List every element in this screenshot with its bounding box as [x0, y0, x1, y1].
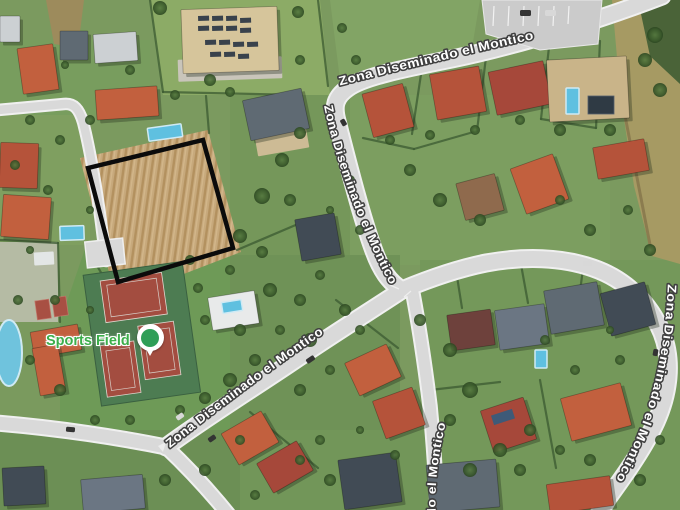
tree [26, 246, 34, 254]
tree [225, 265, 235, 275]
tree [555, 195, 565, 205]
tree [193, 283, 203, 293]
building [429, 66, 486, 120]
tree [653, 83, 667, 97]
tree [474, 214, 486, 226]
tree [254, 188, 270, 204]
tree [326, 206, 334, 214]
solar-panel [212, 26, 223, 31]
vehicle [545, 10, 556, 16]
tree [200, 315, 210, 325]
tree [294, 127, 306, 139]
tree [13, 295, 23, 305]
tree [515, 115, 525, 125]
tree [570, 365, 580, 375]
tree [337, 23, 347, 33]
tree [339, 304, 351, 316]
tree [199, 464, 211, 476]
tree [170, 90, 180, 100]
solar-panel [205, 40, 216, 45]
poi-sports-field[interactable]: Sports Field [46, 324, 164, 357]
solar-panel [226, 26, 237, 31]
swimming-pool [60, 226, 84, 241]
vehicle [520, 10, 531, 16]
tree [295, 455, 305, 465]
solar-panel [198, 26, 209, 31]
tree [462, 382, 478, 398]
tree [50, 295, 60, 305]
tree [235, 435, 245, 445]
tree [159, 474, 171, 486]
building [1, 194, 52, 239]
pin-tip [146, 349, 154, 356]
tree [256, 246, 268, 258]
tree [385, 135, 395, 145]
tree [356, 426, 364, 434]
solar-panel [588, 96, 614, 114]
tree [275, 325, 285, 335]
building [95, 86, 159, 120]
poi-label[interactable]: Sports Field [46, 333, 130, 349]
tree [647, 27, 663, 43]
tree [584, 224, 596, 236]
tree [644, 244, 656, 256]
building [17, 44, 59, 95]
tree [294, 384, 306, 396]
tree [414, 314, 426, 326]
swimming-pool [566, 88, 579, 114]
tree [263, 283, 277, 297]
solar-panel [240, 18, 251, 23]
sports-field-pin-icon[interactable] [137, 324, 164, 357]
vehicle [66, 427, 75, 433]
tree [634, 474, 646, 486]
hedge-line [206, 96, 209, 133]
tree [284, 194, 296, 206]
tree [249, 354, 261, 366]
tree [86, 306, 94, 314]
solar-panel [247, 42, 258, 47]
building [60, 31, 88, 60]
swimming-pool [535, 350, 547, 368]
solar-panel [240, 28, 251, 33]
tree [292, 6, 304, 18]
swimming-pool [221, 300, 242, 314]
tree [233, 229, 247, 243]
tree [125, 65, 135, 75]
tree [25, 115, 35, 125]
satellite-imagery: Zona Diseminado el Montico Zona Disemina… [0, 0, 680, 510]
tree [61, 61, 69, 69]
tree [425, 130, 435, 140]
tree [25, 355, 35, 365]
tree [153, 1, 167, 15]
tree [10, 160, 20, 170]
tree [584, 454, 596, 466]
tree [275, 153, 289, 167]
building [81, 474, 146, 510]
tree [540, 335, 550, 345]
solar-panel [219, 40, 230, 45]
tree [250, 490, 260, 500]
tree [54, 384, 66, 396]
tree [90, 415, 100, 425]
tree [433, 193, 447, 207]
tree [623, 205, 633, 215]
tree [604, 124, 616, 136]
tree [315, 270, 325, 280]
solar-panel [226, 16, 237, 21]
tree [470, 125, 480, 135]
tree [355, 325, 365, 335]
building [0, 16, 20, 42]
solar-panel [212, 16, 223, 21]
tree [524, 424, 536, 436]
tree [606, 326, 614, 334]
tree [404, 164, 416, 176]
tree [199, 392, 211, 404]
tree [55, 135, 65, 145]
solar-panel [238, 54, 249, 59]
tree [638, 53, 652, 67]
tree [463, 463, 477, 477]
tree [615, 355, 625, 365]
tree [125, 415, 135, 425]
tree [351, 55, 361, 65]
tree [493, 443, 507, 457]
building [295, 213, 342, 261]
tree [315, 435, 325, 445]
tree [324, 474, 336, 486]
tree [514, 464, 526, 476]
solar-panel [224, 52, 235, 57]
solar-panel [233, 42, 244, 47]
solar-panel [210, 52, 221, 57]
tree [294, 294, 306, 306]
building [338, 452, 402, 510]
tree [655, 435, 665, 445]
tree [43, 185, 53, 195]
tree [234, 324, 246, 336]
building [93, 32, 138, 64]
tree [86, 206, 94, 214]
solar-panel [198, 16, 209, 21]
tree [443, 343, 457, 357]
tree [325, 365, 335, 375]
tree [390, 450, 400, 460]
map-canvas[interactable]: Zona Diseminado el Montico Zona Disemina… [0, 0, 680, 510]
tree [554, 124, 566, 136]
tree [204, 74, 216, 86]
tree [555, 445, 565, 455]
pin-inner-circle [141, 329, 159, 347]
driveway [34, 251, 55, 265]
tree [295, 55, 305, 65]
building [544, 282, 605, 335]
tree [225, 87, 235, 97]
building [2, 466, 46, 506]
tree [85, 115, 95, 125]
